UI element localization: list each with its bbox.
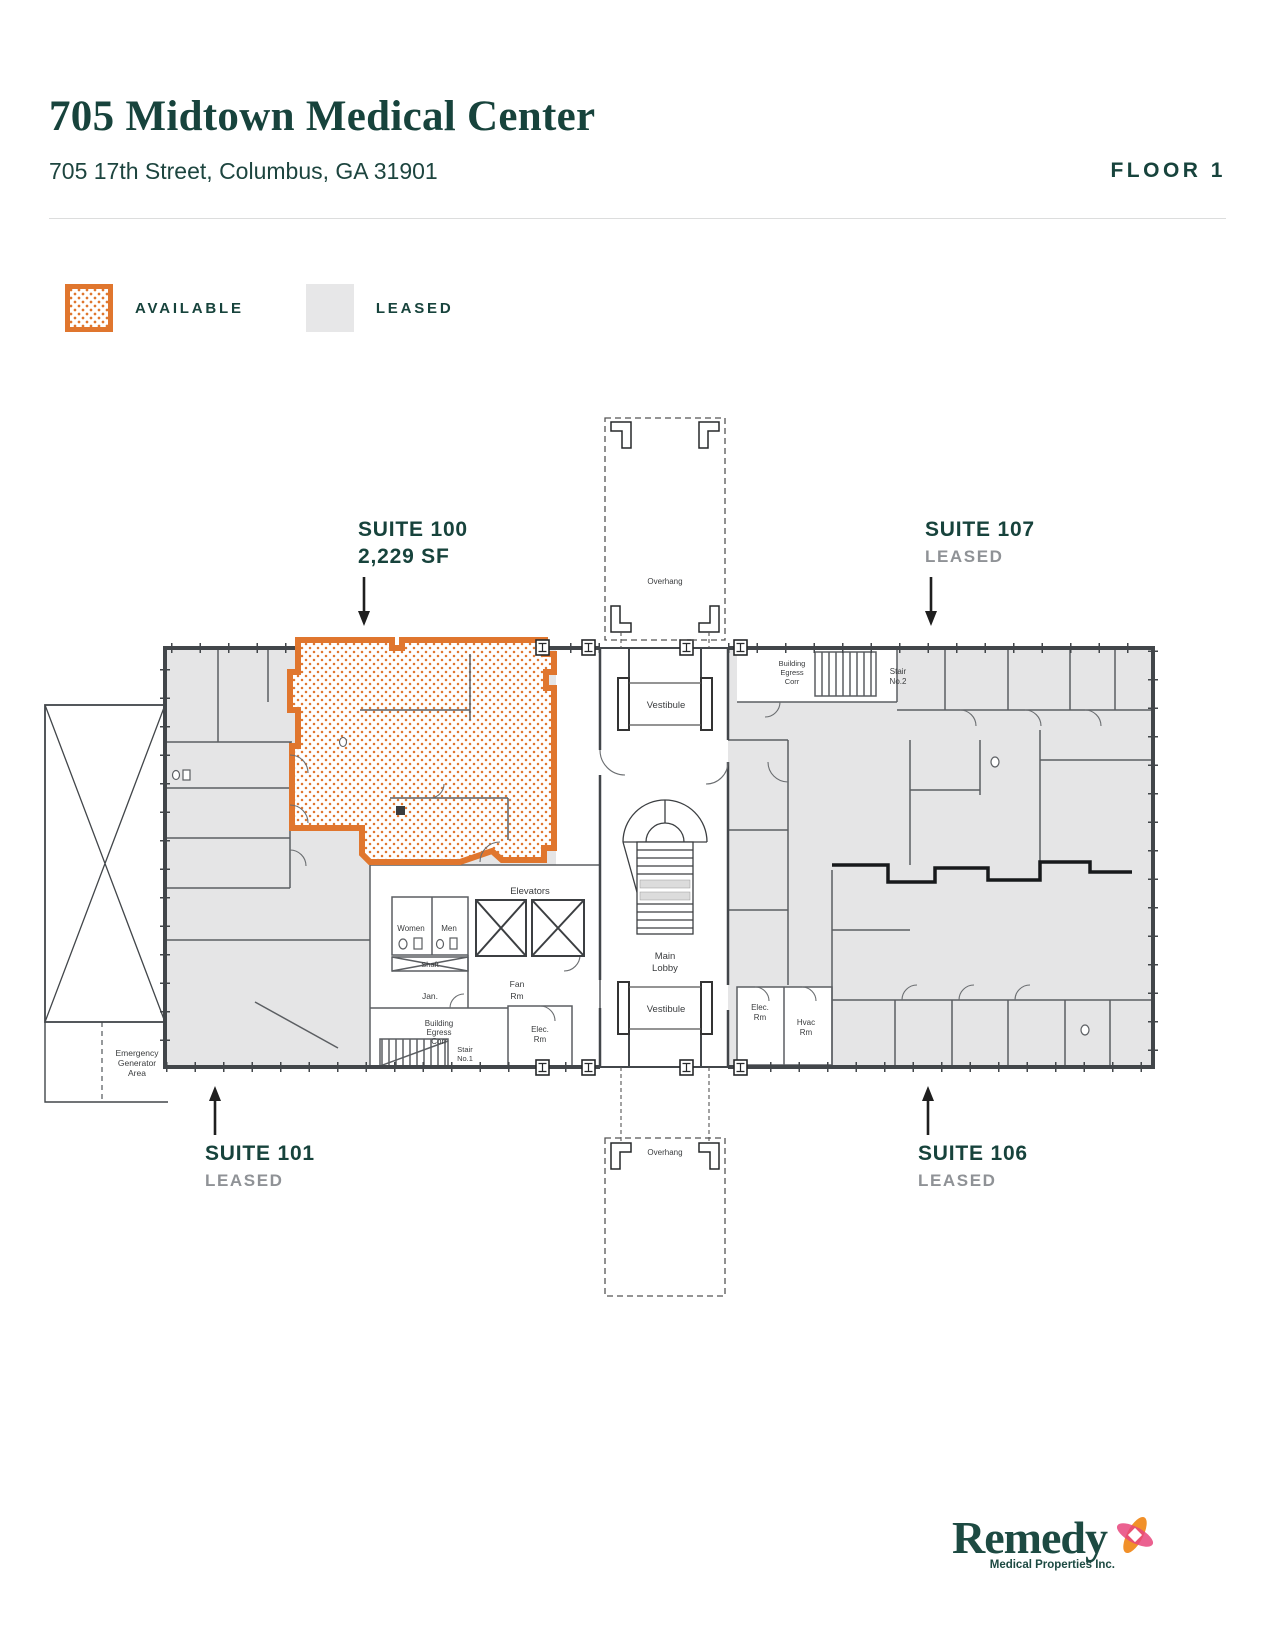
label-egress-core-1: Building bbox=[425, 1019, 453, 1028]
label-elec-core-2: Rm bbox=[534, 1035, 547, 1044]
building-address: 705 17th Street, Columbus, GA 31901 bbox=[49, 158, 438, 185]
label-hvac-1: Hvac bbox=[797, 1018, 815, 1027]
remedy-wordmark: Remedy bbox=[952, 1512, 1107, 1564]
legend-item-leased: LEASED bbox=[306, 284, 454, 332]
label-egress-right-3: Corr bbox=[785, 677, 800, 686]
label-hvac-2: Rm bbox=[800, 1028, 813, 1037]
label-stair1-1: Stair bbox=[457, 1045, 473, 1054]
legend-item-available: AVAILABLE bbox=[65, 284, 244, 332]
label-elec-core-1: Elec. bbox=[531, 1025, 549, 1034]
remedy-flower-icon bbox=[1110, 1508, 1160, 1562]
label-jan: Jan. bbox=[422, 991, 438, 1001]
header-divider bbox=[49, 218, 1226, 219]
loading-dock bbox=[45, 705, 168, 1102]
leased-label: LEASED bbox=[376, 300, 454, 317]
label-shaft: Shaft bbox=[421, 960, 439, 969]
label-women: Women bbox=[397, 924, 424, 933]
label-main-lobby-2: Lobby bbox=[652, 963, 678, 974]
label-stair2-1: Stair bbox=[890, 667, 907, 676]
label-generator-1: Emergency bbox=[116, 1048, 160, 1058]
label-overhang-bottom: Overhang bbox=[647, 1148, 682, 1157]
label-elevators: Elevators bbox=[510, 886, 550, 897]
label-vestibule-top: Vestibule bbox=[647, 700, 686, 711]
label-stair2-2: No.2 bbox=[890, 677, 907, 686]
label-main-lobby-1: Main bbox=[655, 951, 676, 962]
available-label: AVAILABLE bbox=[135, 300, 244, 317]
label-men: Men bbox=[441, 924, 457, 933]
label-fan-rm-1: Fan bbox=[510, 979, 525, 989]
flyer-page: 705 Midtown Medical Center 705 17th Stre… bbox=[0, 0, 1275, 1650]
floor-label: FLOOR 1 bbox=[1110, 159, 1226, 183]
label-elec-right-2: Rm bbox=[754, 1013, 767, 1022]
page-title: 705 Midtown Medical Center bbox=[49, 92, 595, 141]
suite-100-region bbox=[290, 640, 554, 862]
label-overhang-top: Overhang bbox=[647, 577, 682, 586]
label-fan-rm-2: Rm bbox=[510, 991, 523, 1001]
floor-plan: Overhang Overhang Vestibule Vestibule Ma… bbox=[40, 410, 1160, 1300]
label-stair1-2: No.1 bbox=[457, 1054, 473, 1063]
overhang-top bbox=[605, 418, 725, 648]
label-egress-core-3: Corr bbox=[431, 1037, 447, 1046]
vestibule-bottom-structure bbox=[618, 982, 712, 1067]
label-vestibule-bottom: Vestibule bbox=[647, 1004, 686, 1015]
remedy-logo: Remedy Medical Properties Inc. bbox=[952, 1512, 1167, 1571]
available-swatch bbox=[65, 284, 113, 332]
overhang-bottom bbox=[605, 1067, 725, 1296]
label-egress-right-1: Building bbox=[779, 659, 806, 668]
label-generator-3: Area bbox=[128, 1068, 146, 1078]
label-egress-right-2: Egress bbox=[780, 668, 804, 677]
lobby-stair bbox=[623, 800, 707, 934]
vestibule-top-structure bbox=[618, 648, 712, 730]
label-generator-2: Generator bbox=[118, 1058, 156, 1068]
legend: AVAILABLE LEASED bbox=[65, 284, 453, 332]
leased-swatch bbox=[306, 284, 354, 332]
label-egress-core-2: Egress bbox=[427, 1028, 452, 1037]
label-elec-right-1: Elec. bbox=[751, 1003, 769, 1012]
